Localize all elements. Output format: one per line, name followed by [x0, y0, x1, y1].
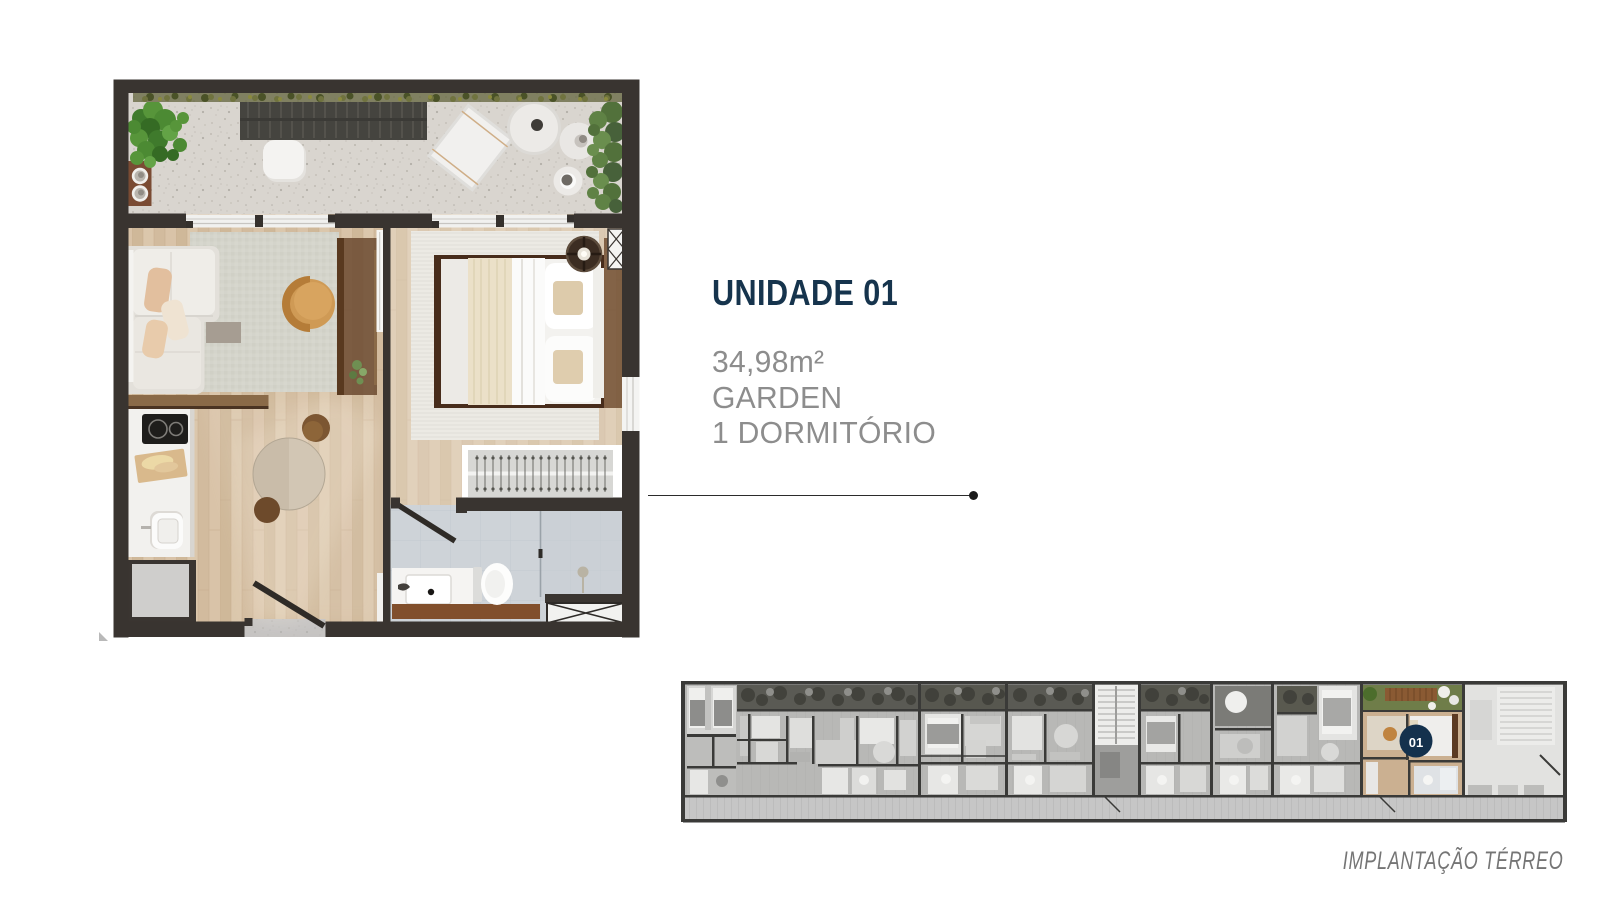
svg-text:01: 01	[1409, 735, 1423, 750]
